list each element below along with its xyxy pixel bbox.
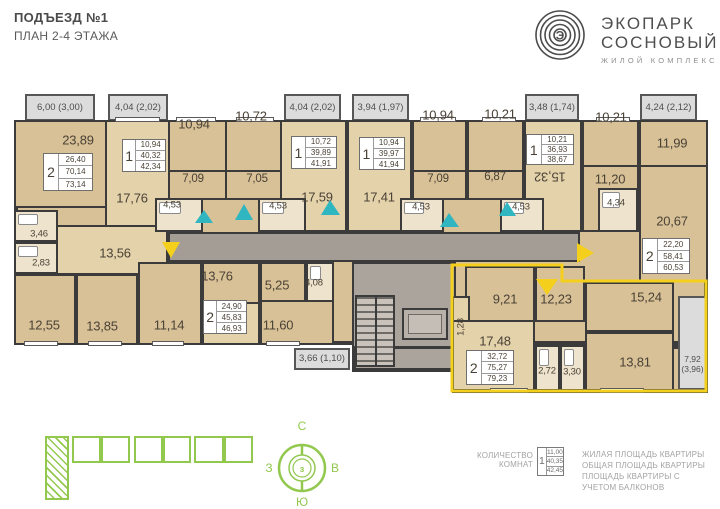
room-area-label: 4,08 xyxy=(305,278,323,289)
compass-west: З xyxy=(265,461,272,475)
room-area-label: 10,72 xyxy=(235,109,267,124)
room xyxy=(76,274,138,345)
apartment-rooms-count: 1 xyxy=(292,137,306,168)
apartment-living-area: 10,72 xyxy=(306,137,336,148)
logo-line1: ЭКОПАРК xyxy=(601,14,719,33)
room xyxy=(412,120,467,172)
room-area-label: 20,67 xyxy=(656,214,688,229)
balcony: 4,24 (2,12) xyxy=(640,94,697,121)
bathroom xyxy=(598,188,638,232)
room-area-label: 7,09 xyxy=(182,173,204,185)
key-plan-section xyxy=(134,436,163,463)
room xyxy=(467,120,524,172)
room-area-label: 7,09 xyxy=(427,173,449,185)
room-area-label: 10,94 xyxy=(422,108,454,123)
room-area-label: 2,72 xyxy=(538,366,556,377)
legend-sample-rooms: 1 xyxy=(538,448,547,475)
room-area-label: 17,41 xyxy=(363,190,395,205)
page-subtitle: ПЛАН 2-4 ЭТАЖА xyxy=(14,29,118,43)
apartment-living-area: 10,21 xyxy=(542,135,574,145)
room-area-label: 11,99 xyxy=(657,136,688,151)
legend-balcony-label: ПЛОЩАДЬ КВАРТИРЫ С УЧЕТОМ БАЛКОНОВ xyxy=(582,471,714,493)
room-area-label: 15,32 xyxy=(534,170,566,185)
room-area-label: 12,55 xyxy=(28,318,60,333)
apartment-total-area: 39,97 xyxy=(374,149,404,160)
apartment-area-with-balcony: 46,93 xyxy=(217,323,246,333)
apartment-info-box: 1 10,9440,3242,34 xyxy=(122,139,166,172)
room-area-label: 13,81 xyxy=(619,355,651,370)
apartment-total-area: 39,89 xyxy=(306,148,336,159)
apartment-living-area: 22,20 xyxy=(658,239,690,251)
room-area-label: 23,89 xyxy=(62,133,94,148)
apartment-info-box: 1 10,7239,8941,91 xyxy=(291,136,337,169)
legend-sample-living: 11,00 xyxy=(547,448,563,457)
key-plan-section xyxy=(72,436,101,463)
room-area-label: 3,46 xyxy=(30,229,48,240)
key-plan-section xyxy=(194,436,224,463)
legend-living-label: ЖИЛАЯ ПЛОЩАДЬ КВАРТИРЫ xyxy=(582,449,714,460)
room-area-label: 3,30 xyxy=(563,367,581,378)
apartment-rooms-count: 2 xyxy=(643,239,658,273)
balcony: 3,66 (1,10) xyxy=(294,348,350,370)
room-area-label: 9,21 xyxy=(493,292,518,307)
balcony: 3,48 (1,74) xyxy=(525,94,579,121)
room-area-label: 15,24 xyxy=(630,290,662,305)
room-area-label: 5,25 xyxy=(265,278,290,293)
apartment-living-area: 10,94 xyxy=(136,140,165,151)
key-plan-section xyxy=(163,436,191,463)
apartment-info-box: 2 32,7275,2779,23 xyxy=(466,350,514,385)
balcony: 7,92 (3,96) xyxy=(678,296,707,390)
ecopark-logo-icon: Э xyxy=(532,7,588,63)
room-area-label: 11,14 xyxy=(154,318,185,333)
room-area-label: 13,56 xyxy=(99,246,131,261)
staircase xyxy=(355,295,395,367)
apartment-total-area: 70,14 xyxy=(59,166,92,178)
room-area-label: 13,85 xyxy=(86,319,118,334)
apartment-rooms-count: 2 xyxy=(467,351,482,384)
room-area-label: 13,76 xyxy=(201,269,233,284)
page-title: ПОДЪЕЗД №1 xyxy=(14,10,108,25)
apartment-area-with-balcony: 41,91 xyxy=(306,158,336,168)
balcony: 6,00 (3,00) xyxy=(25,94,95,121)
key-plan-section xyxy=(101,436,130,463)
room-area-label: 10,21 xyxy=(595,110,627,125)
compass-east: В xyxy=(331,461,339,475)
apartment-living-area: 26,40 xyxy=(59,154,92,166)
apartment-rooms-count: 1 xyxy=(123,140,136,171)
apartment-info-box: 2 26,4070,1473,14 xyxy=(43,153,93,191)
logo-tagline: ЖИЛОЙ КОМПЛЕКС xyxy=(601,56,719,65)
legend-sample-total: 40,35 xyxy=(547,457,563,466)
apartment-info-box: 2 22,2058,4160,53 xyxy=(642,238,690,274)
apartment-rooms-count: 2 xyxy=(44,154,59,190)
compass-south: Ю xyxy=(296,495,308,509)
logo-monogram: Э xyxy=(556,29,565,43)
room-area-label: 17,59 xyxy=(301,190,333,205)
room-area-label: 4,53 xyxy=(163,200,181,211)
apartment-living-area: 24,90 xyxy=(217,301,246,312)
apartment-info-box: 1 10,9439,9741,94 xyxy=(359,137,405,170)
apartment-rooms-count: 1 xyxy=(360,138,374,169)
apartment-total-area: 36,93 xyxy=(542,145,574,155)
apartment-living-area: 10,94 xyxy=(374,138,404,149)
legend-rooms-label: КОЛИЧЕСТВО КОМНАТ xyxy=(470,451,533,469)
room xyxy=(225,120,282,172)
apartment-rooms-count: 1 xyxy=(527,135,542,164)
key-plan-current-section xyxy=(45,436,69,500)
compass-north: С xyxy=(298,419,307,433)
legend-sample-box: 1 11,00 40,35 42,45 xyxy=(537,447,564,476)
apartment-total-area: 58,41 xyxy=(658,251,690,263)
corridor xyxy=(168,232,580,262)
floor-plan-page: { "header": { "title": "ПОДЪЕЗД №1", "su… xyxy=(0,0,720,509)
apartment-total-area: 75,27 xyxy=(482,362,514,373)
room xyxy=(138,262,202,345)
apartment-info-box: 1 10,2136,9338,67 xyxy=(526,134,574,165)
room-area-label: 11,20 xyxy=(595,172,626,187)
apartment-info-box: 2 24,9045,8346,93 xyxy=(203,300,247,334)
balcony: 3,94 (1,97) xyxy=(352,94,409,121)
compass: з С Ю З В xyxy=(262,418,342,508)
apartment-living-area: 32,72 xyxy=(482,351,514,362)
room-area-label: 17,76 xyxy=(116,191,148,206)
legend-total-label: ОБЩАЯ ПЛОЩАДЬ КВАРТИРЫ xyxy=(582,460,714,471)
svg-text:з: з xyxy=(300,464,305,474)
room-area-label: 6,87 xyxy=(484,171,506,183)
room xyxy=(14,274,76,345)
legend-area-labels: ЖИЛАЯ ПЛОЩАДЬ КВАРТИРЫ ОБЩАЯ ПЛОЩАДЬ КВА… xyxy=(582,449,714,493)
apartment-area-with-balcony: 60,53 xyxy=(658,262,690,273)
room-area-label: 4,53 xyxy=(412,202,430,213)
elevator xyxy=(402,308,448,340)
room-area-label: 7,05 xyxy=(246,173,268,185)
logo-line2: СОСНОВЫЙ xyxy=(601,33,719,52)
logo-text: ЭКОПАРК СОСНОВЫЙ ЖИЛОЙ КОМПЛЕКС xyxy=(601,14,719,65)
room-area-label: 4,34 xyxy=(607,198,625,209)
room-area-label: 1,28 xyxy=(456,318,467,336)
apartment-total-area: 40,32 xyxy=(136,151,165,162)
apartment-area-with-balcony: 73,14 xyxy=(59,179,92,190)
legend-sample-with-balcony: 42,45 xyxy=(547,467,563,475)
key-plan-section xyxy=(224,436,253,463)
balcony: 4,04 (2,02) xyxy=(284,94,341,121)
apartment-total-area: 45,83 xyxy=(217,312,246,323)
room-area-label: 11,60 xyxy=(263,318,294,333)
room-area-label: 10,21 xyxy=(484,107,516,122)
apartment-area-with-balcony: 38,67 xyxy=(542,155,574,164)
apartment-area-with-balcony: 42,34 xyxy=(136,161,165,171)
apartment-area-with-balcony: 79,23 xyxy=(482,374,514,384)
room-area-label: 17,48 xyxy=(479,334,511,349)
room-area-label: 12,23 xyxy=(540,292,572,307)
room-area-label: 10,94 xyxy=(178,117,210,132)
apartment-area-with-balcony: 41,94 xyxy=(374,159,404,169)
room-area-label: 2,83 xyxy=(32,258,50,269)
room-area-label: 4,53 xyxy=(512,202,530,213)
room-area-label: 4,53 xyxy=(269,201,287,212)
apartment-rooms-count: 2 xyxy=(204,301,217,333)
